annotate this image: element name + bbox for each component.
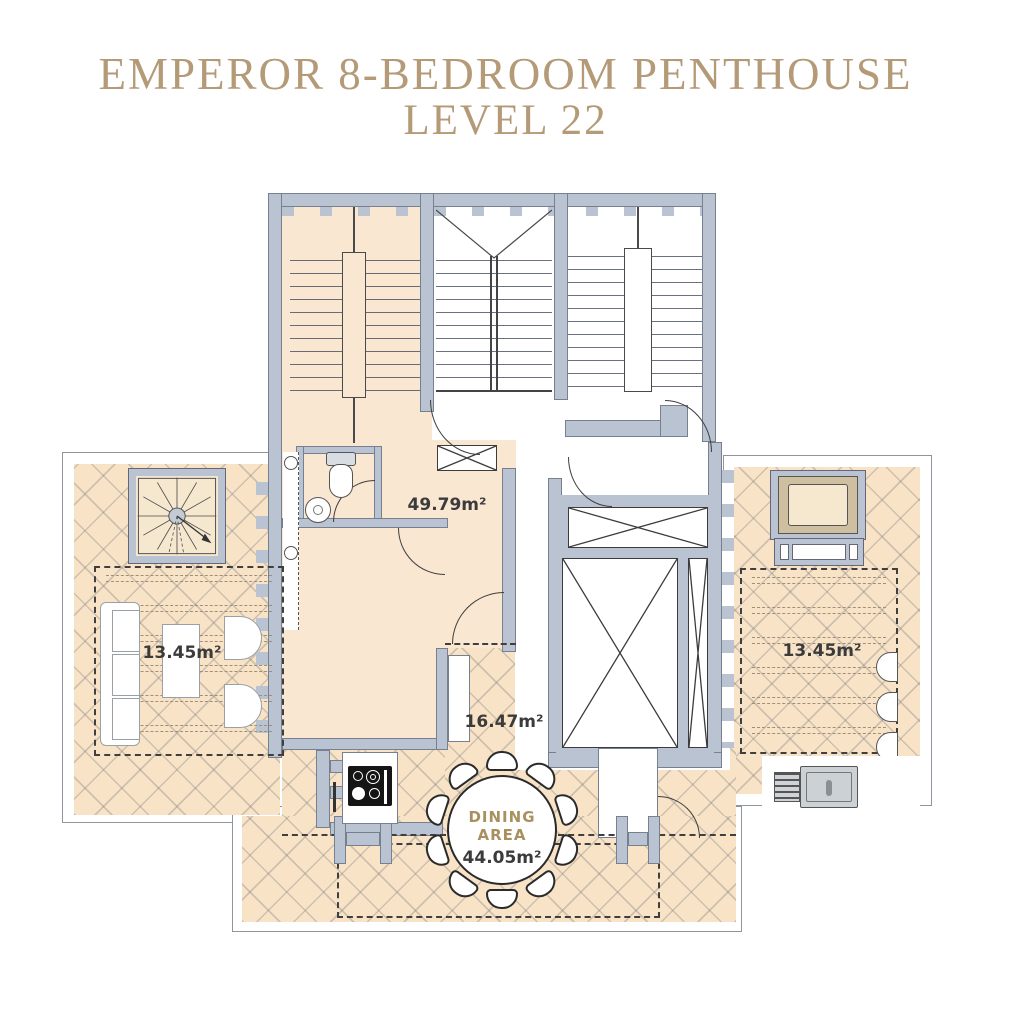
sink-drain-icon [313,505,323,515]
elevator-shaft [568,507,708,548]
planter-icon [876,692,898,722]
page-subtitle: LEVEL 22 [0,96,1011,145]
bench-seat [792,544,846,560]
column-icon [284,546,298,560]
column-icon [648,816,660,864]
bench-leg [780,544,789,560]
stair-landing-lines [436,208,552,260]
pergola-beam [752,577,886,584]
stair-divider-line [637,207,639,248]
wall-segment [268,193,716,207]
column-beam [628,832,648,846]
wall-segment [702,193,716,442]
grill-icon [774,772,800,802]
burner-icon [352,787,365,800]
wall-segment [554,193,568,400]
jacuzzi-basin [788,484,848,526]
stair-divider-line [353,207,355,252]
wall-segment [436,648,448,750]
wall-segment [502,468,516,652]
stair-center-rail [490,256,498,392]
page-title: EMPEROR 8-BEDROOM PENTHOUSE [0,48,1011,100]
cooktop-bar [384,770,387,804]
pergola-beam [106,575,272,582]
service-shaft [688,558,708,748]
pergola-beam [752,667,886,674]
stair-stringer [342,252,366,398]
area-label-main: 49.79m² [397,495,497,515]
floor-plan-page: EMPEROR 8-BEDROOM PENTHOUSE LEVEL 22 [0,0,1011,1024]
wall-segment [374,446,382,526]
column-icon [284,456,298,470]
area-label-right-terrace: 13.45m² [772,641,872,661]
planter-icon [876,652,898,682]
burner-icon [353,771,363,781]
wall-segment [420,193,434,412]
area-label-left-terrace: 13.45m² [132,643,232,663]
burner-icon [369,788,380,799]
faucet-icon [826,780,832,796]
column-beam [346,832,380,846]
handle-icon [333,782,336,812]
spiral-staircase-icon [136,476,218,556]
wall-segment [316,750,330,828]
threshold-line [445,643,516,645]
area-label-dining: 44.05m² [452,848,552,868]
elevator-shaft [562,558,678,748]
sofa-cushion [112,698,140,740]
pergola-beam [752,697,886,704]
toilet-bowl-icon [329,464,353,498]
area-label-middle-terrace: 16.47m² [454,712,554,732]
column-icon [616,816,628,864]
pergola-beam [752,727,886,734]
bench-leg [849,544,858,560]
burner-icon [370,774,376,780]
wall-segment [282,738,448,750]
toothed-wall-right [722,470,734,748]
closet-strip [283,452,299,630]
stair-stringer [624,248,652,392]
dining-area-label-1: DINING [452,808,552,826]
dining-area-label-2: AREA [452,826,552,844]
stair-edge-line [436,390,552,392]
stair-divider-line [353,398,355,443]
pergola-beam [752,607,886,614]
